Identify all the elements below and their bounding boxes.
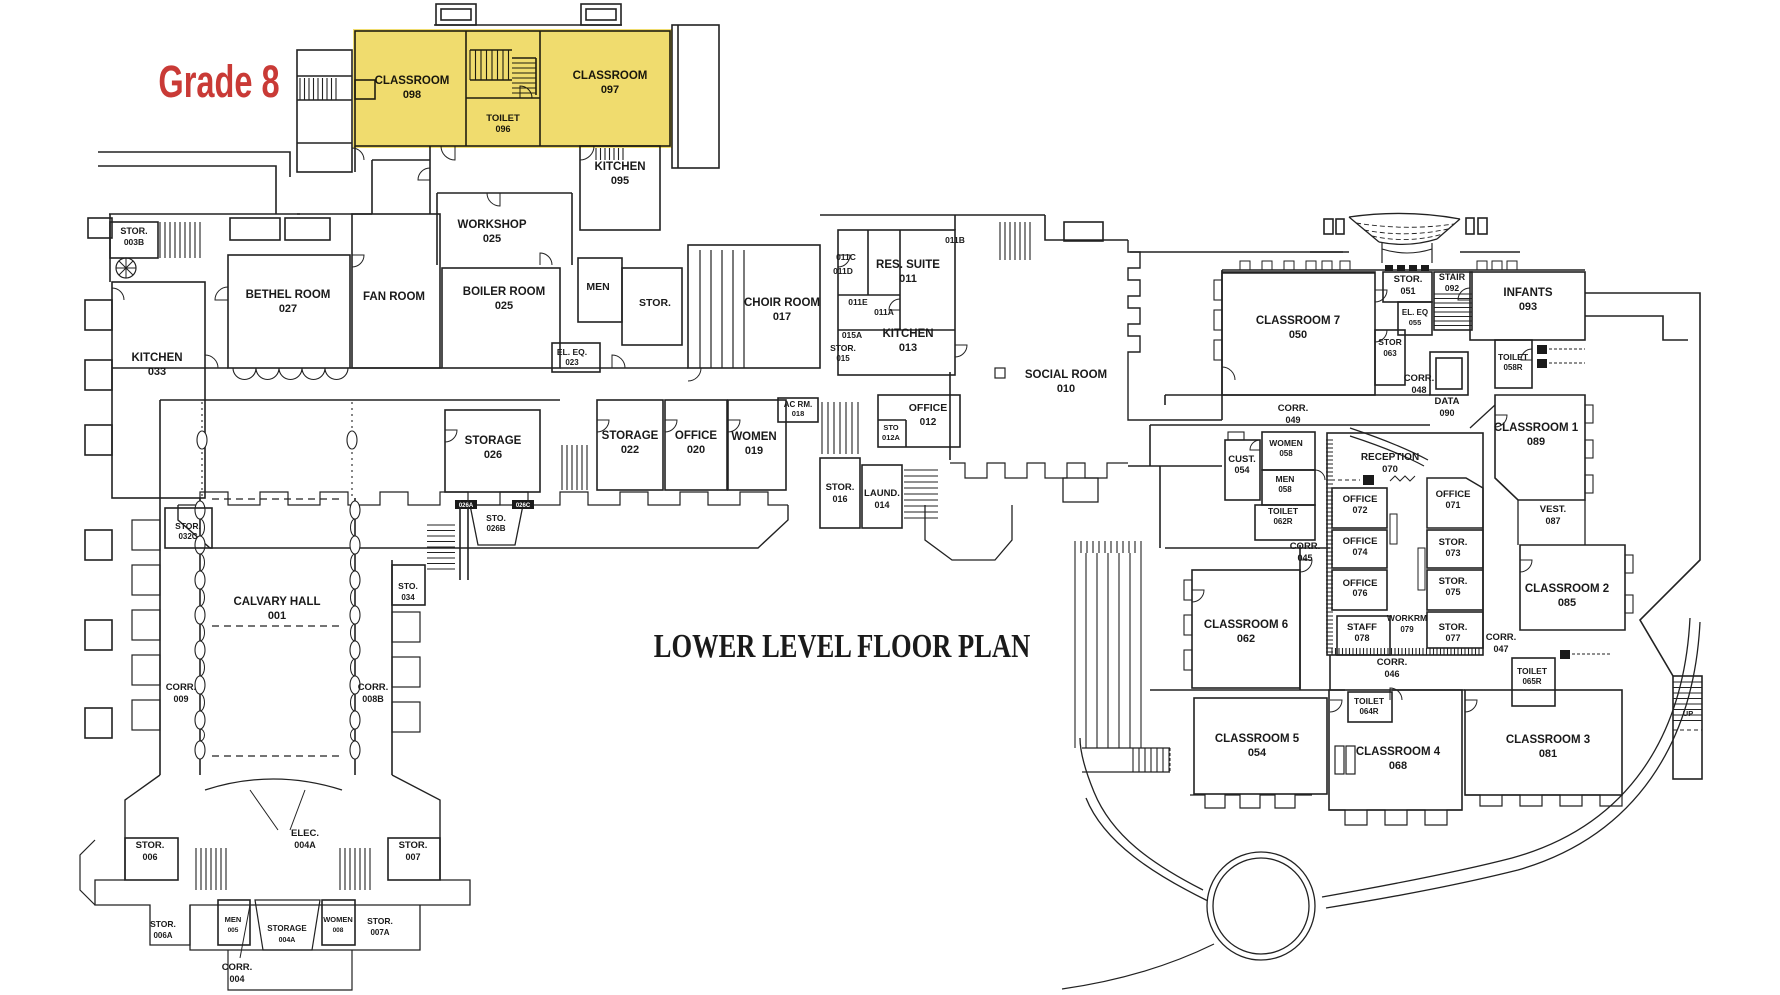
svg-text:STOR.: STOR. bbox=[1394, 274, 1423, 285]
svg-text:027: 027 bbox=[279, 303, 297, 315]
svg-text:STORAGE: STORAGE bbox=[602, 430, 659, 442]
svg-text:072: 072 bbox=[1352, 505, 1367, 515]
svg-text:011B: 011B bbox=[945, 235, 965, 245]
svg-text:014: 014 bbox=[874, 500, 889, 510]
svg-text:WOMEN: WOMEN bbox=[323, 915, 353, 924]
svg-text:010: 010 bbox=[1057, 383, 1075, 395]
svg-text:STOR.: STOR. bbox=[639, 297, 671, 309]
svg-text:STOR.: STOR. bbox=[1439, 576, 1468, 587]
svg-text:012A: 012A bbox=[882, 433, 901, 442]
svg-text:CALVARY HALL: CALVARY HALL bbox=[233, 596, 320, 608]
svg-text:025: 025 bbox=[495, 300, 513, 312]
svg-text:CORR.: CORR. bbox=[166, 682, 197, 693]
svg-text:STO.: STO. bbox=[486, 513, 506, 523]
svg-text:011E: 011E bbox=[848, 297, 868, 307]
svg-text:007: 007 bbox=[405, 852, 420, 862]
svg-text:EL. EQ: EL. EQ bbox=[1402, 308, 1428, 317]
svg-text:076: 076 bbox=[1352, 588, 1367, 598]
svg-text:015A: 015A bbox=[842, 330, 862, 340]
svg-text:008B: 008B bbox=[362, 694, 384, 704]
svg-text:022: 022 bbox=[621, 444, 639, 456]
svg-text:STOR.: STOR. bbox=[1439, 537, 1468, 548]
svg-text:048: 048 bbox=[1411, 385, 1426, 395]
svg-text:EL. EQ.: EL. EQ. bbox=[557, 347, 587, 357]
svg-text:055: 055 bbox=[1409, 318, 1422, 327]
svg-text:046: 046 bbox=[1384, 669, 1399, 679]
svg-text:074: 074 bbox=[1352, 547, 1367, 557]
svg-text:STOR.: STOR. bbox=[830, 343, 856, 353]
svg-text:STOR.: STOR. bbox=[367, 916, 393, 926]
svg-text:065R: 065R bbox=[1522, 677, 1541, 686]
svg-text:075: 075 bbox=[1445, 587, 1460, 597]
svg-text:054: 054 bbox=[1248, 747, 1267, 759]
svg-text:078: 078 bbox=[1354, 633, 1369, 643]
svg-text:OFFICE: OFFICE bbox=[675, 430, 717, 442]
svg-text:026C: 026C bbox=[516, 503, 531, 509]
svg-text:058R: 058R bbox=[1503, 363, 1522, 372]
svg-text:CHOIR ROOM: CHOIR ROOM bbox=[744, 297, 820, 309]
svg-text:Grade 8: Grade 8 bbox=[158, 57, 279, 108]
svg-text:LOWER LEVEL FLOOR PLAN: LOWER LEVEL FLOOR PLAN bbox=[654, 627, 1030, 665]
svg-text:CORR.: CORR. bbox=[1486, 632, 1517, 643]
svg-text:CORR.: CORR. bbox=[1290, 541, 1321, 552]
svg-text:012: 012 bbox=[920, 417, 937, 428]
svg-text:058: 058 bbox=[1278, 485, 1292, 494]
svg-text:BETHEL ROOM: BETHEL ROOM bbox=[246, 289, 331, 301]
svg-text:CLASSROOM 6: CLASSROOM 6 bbox=[1204, 619, 1288, 631]
svg-text:TOILET: TOILET bbox=[1517, 666, 1548, 676]
svg-text:011: 011 bbox=[899, 273, 917, 285]
svg-text:TOILET: TOILET bbox=[1268, 506, 1299, 516]
svg-text:047: 047 bbox=[1493, 644, 1508, 654]
svg-text:034: 034 bbox=[401, 593, 415, 602]
svg-text:070: 070 bbox=[1382, 464, 1398, 475]
svg-text:004A: 004A bbox=[294, 840, 316, 850]
svg-text:TOILET: TOILET bbox=[1498, 352, 1529, 362]
svg-text:003B: 003B bbox=[124, 237, 144, 247]
svg-text:OFFICE: OFFICE bbox=[1436, 489, 1471, 500]
svg-text:STAFF: STAFF bbox=[1347, 622, 1377, 633]
svg-text:STOR.: STOR. bbox=[175, 521, 201, 531]
svg-text:017: 017 bbox=[773, 311, 791, 323]
svg-text:MEN: MEN bbox=[225, 915, 242, 924]
svg-text:019: 019 bbox=[745, 445, 763, 457]
svg-text:AC RM.: AC RM. bbox=[784, 400, 812, 409]
svg-text:033: 033 bbox=[148, 366, 166, 378]
svg-text:ELEC.: ELEC. bbox=[291, 828, 319, 839]
svg-text:VEST.: VEST. bbox=[1540, 504, 1566, 515]
svg-text:026A: 026A bbox=[459, 503, 474, 509]
svg-text:079: 079 bbox=[1400, 625, 1414, 634]
svg-text:006: 006 bbox=[142, 852, 157, 862]
svg-text:STOR: STOR bbox=[1378, 337, 1401, 347]
svg-text:BOILER ROOM: BOILER ROOM bbox=[463, 286, 545, 298]
svg-text:004: 004 bbox=[229, 974, 244, 984]
svg-text:LAUND.: LAUND. bbox=[864, 488, 900, 499]
svg-text:005: 005 bbox=[228, 927, 239, 934]
svg-text:STOR.: STOR. bbox=[399, 840, 428, 851]
svg-text:CORR.: CORR. bbox=[358, 682, 389, 693]
svg-text:089: 089 bbox=[1527, 436, 1545, 448]
svg-text:054: 054 bbox=[1234, 465, 1249, 475]
svg-text:025: 025 bbox=[483, 233, 501, 245]
svg-text:081: 081 bbox=[1539, 748, 1557, 760]
svg-text:CLASSROOM 5: CLASSROOM 5 bbox=[1215, 733, 1300, 745]
svg-text:085: 085 bbox=[1558, 597, 1576, 609]
svg-text:FAN ROOM: FAN ROOM bbox=[363, 291, 425, 303]
svg-text:018: 018 bbox=[792, 409, 805, 418]
svg-text:STO: STO bbox=[883, 423, 898, 432]
svg-text:050: 050 bbox=[1289, 329, 1307, 341]
svg-text:093: 093 bbox=[1519, 301, 1537, 313]
svg-text:KITCHEN: KITCHEN bbox=[594, 161, 645, 173]
svg-text:032C: 032C bbox=[178, 532, 197, 541]
svg-text:WOMEN: WOMEN bbox=[1269, 438, 1303, 448]
svg-text:STORAGE: STORAGE bbox=[465, 435, 522, 447]
svg-text:RECEPTION: RECEPTION bbox=[1361, 452, 1419, 463]
svg-text:CORR.: CORR. bbox=[1278, 403, 1309, 414]
svg-text:MEN: MEN bbox=[586, 281, 609, 293]
svg-text:064R: 064R bbox=[1359, 707, 1378, 716]
svg-text:UP: UP bbox=[1683, 709, 1693, 718]
svg-text:STORAGE: STORAGE bbox=[267, 924, 307, 933]
svg-text:011C: 011C bbox=[836, 252, 856, 262]
svg-text:KITCHEN: KITCHEN bbox=[882, 328, 933, 340]
svg-text:CUST.: CUST. bbox=[1228, 454, 1255, 465]
svg-text:062R: 062R bbox=[1273, 517, 1292, 526]
svg-text:090: 090 bbox=[1439, 408, 1454, 418]
svg-text:WORKRM: WORKRM bbox=[1387, 613, 1427, 623]
svg-text:045: 045 bbox=[1297, 553, 1312, 563]
svg-text:016: 016 bbox=[832, 494, 847, 504]
svg-text:073: 073 bbox=[1445, 548, 1460, 558]
svg-text:KITCHEN: KITCHEN bbox=[131, 352, 182, 364]
svg-text:087: 087 bbox=[1545, 516, 1560, 526]
svg-text:CLASSROOM 2: CLASSROOM 2 bbox=[1525, 583, 1609, 595]
svg-text:092: 092 bbox=[1445, 283, 1459, 293]
svg-text:CORR.: CORR. bbox=[1377, 657, 1408, 668]
svg-text:STOR.: STOR. bbox=[826, 482, 855, 493]
svg-text:063: 063 bbox=[1383, 349, 1397, 358]
svg-text:WOMEN: WOMEN bbox=[731, 431, 776, 443]
svg-text:MEN: MEN bbox=[1276, 474, 1295, 484]
svg-text:077: 077 bbox=[1445, 633, 1460, 643]
svg-text:STOR.: STOR. bbox=[1439, 622, 1468, 633]
svg-text:CORR.: CORR. bbox=[1404, 373, 1435, 384]
svg-text:049: 049 bbox=[1285, 415, 1300, 425]
svg-text:DATA: DATA bbox=[1435, 396, 1460, 407]
svg-text:STAIR: STAIR bbox=[1439, 272, 1466, 282]
svg-text:015: 015 bbox=[836, 354, 850, 363]
svg-text:007A: 007A bbox=[370, 928, 389, 937]
svg-text:011D: 011D bbox=[833, 266, 853, 276]
svg-text:095: 095 bbox=[611, 175, 629, 187]
svg-text:INFANTS: INFANTS bbox=[1503, 287, 1553, 299]
svg-text:013: 013 bbox=[899, 342, 917, 354]
svg-text:WORKSHOP: WORKSHOP bbox=[458, 219, 527, 231]
svg-text:058: 058 bbox=[1279, 449, 1293, 458]
svg-text:OFFICE: OFFICE bbox=[1343, 494, 1378, 505]
svg-text:071: 071 bbox=[1445, 500, 1460, 510]
svg-text:009: 009 bbox=[173, 694, 188, 704]
svg-text:026B: 026B bbox=[486, 524, 505, 533]
svg-text:CLASSROOM 1: CLASSROOM 1 bbox=[1494, 422, 1579, 434]
svg-text:TOILET: TOILET bbox=[1354, 696, 1385, 706]
svg-text:062: 062 bbox=[1237, 633, 1255, 645]
svg-text:006A: 006A bbox=[153, 931, 172, 940]
svg-text:OFFICE: OFFICE bbox=[1343, 536, 1378, 547]
svg-text:STO.: STO. bbox=[398, 581, 418, 591]
svg-text:026: 026 bbox=[484, 449, 502, 461]
svg-text:SOCIAL ROOM: SOCIAL ROOM bbox=[1025, 369, 1107, 381]
svg-text:STOR.: STOR. bbox=[150, 919, 176, 929]
svg-text:020: 020 bbox=[687, 444, 705, 456]
svg-text:004A: 004A bbox=[279, 937, 296, 944]
svg-text:CLASSROOM 3: CLASSROOM 3 bbox=[1506, 734, 1590, 746]
svg-text:RES. SUITE: RES. SUITE bbox=[876, 259, 940, 271]
svg-text:STOR.: STOR. bbox=[136, 840, 165, 851]
svg-text:CLASSROOM 4: CLASSROOM 4 bbox=[1356, 746, 1441, 758]
svg-text:008: 008 bbox=[333, 927, 344, 934]
svg-text:051: 051 bbox=[1400, 286, 1415, 296]
svg-text:STOR.: STOR. bbox=[120, 226, 147, 236]
svg-text:001: 001 bbox=[268, 610, 286, 622]
svg-text:OFFICE: OFFICE bbox=[909, 402, 948, 414]
svg-text:CORR.: CORR. bbox=[222, 962, 253, 973]
svg-text:068: 068 bbox=[1389, 760, 1407, 772]
svg-text:023: 023 bbox=[565, 358, 579, 367]
svg-text:011A: 011A bbox=[874, 307, 894, 317]
svg-text:CLASSROOM 7: CLASSROOM 7 bbox=[1256, 315, 1340, 327]
